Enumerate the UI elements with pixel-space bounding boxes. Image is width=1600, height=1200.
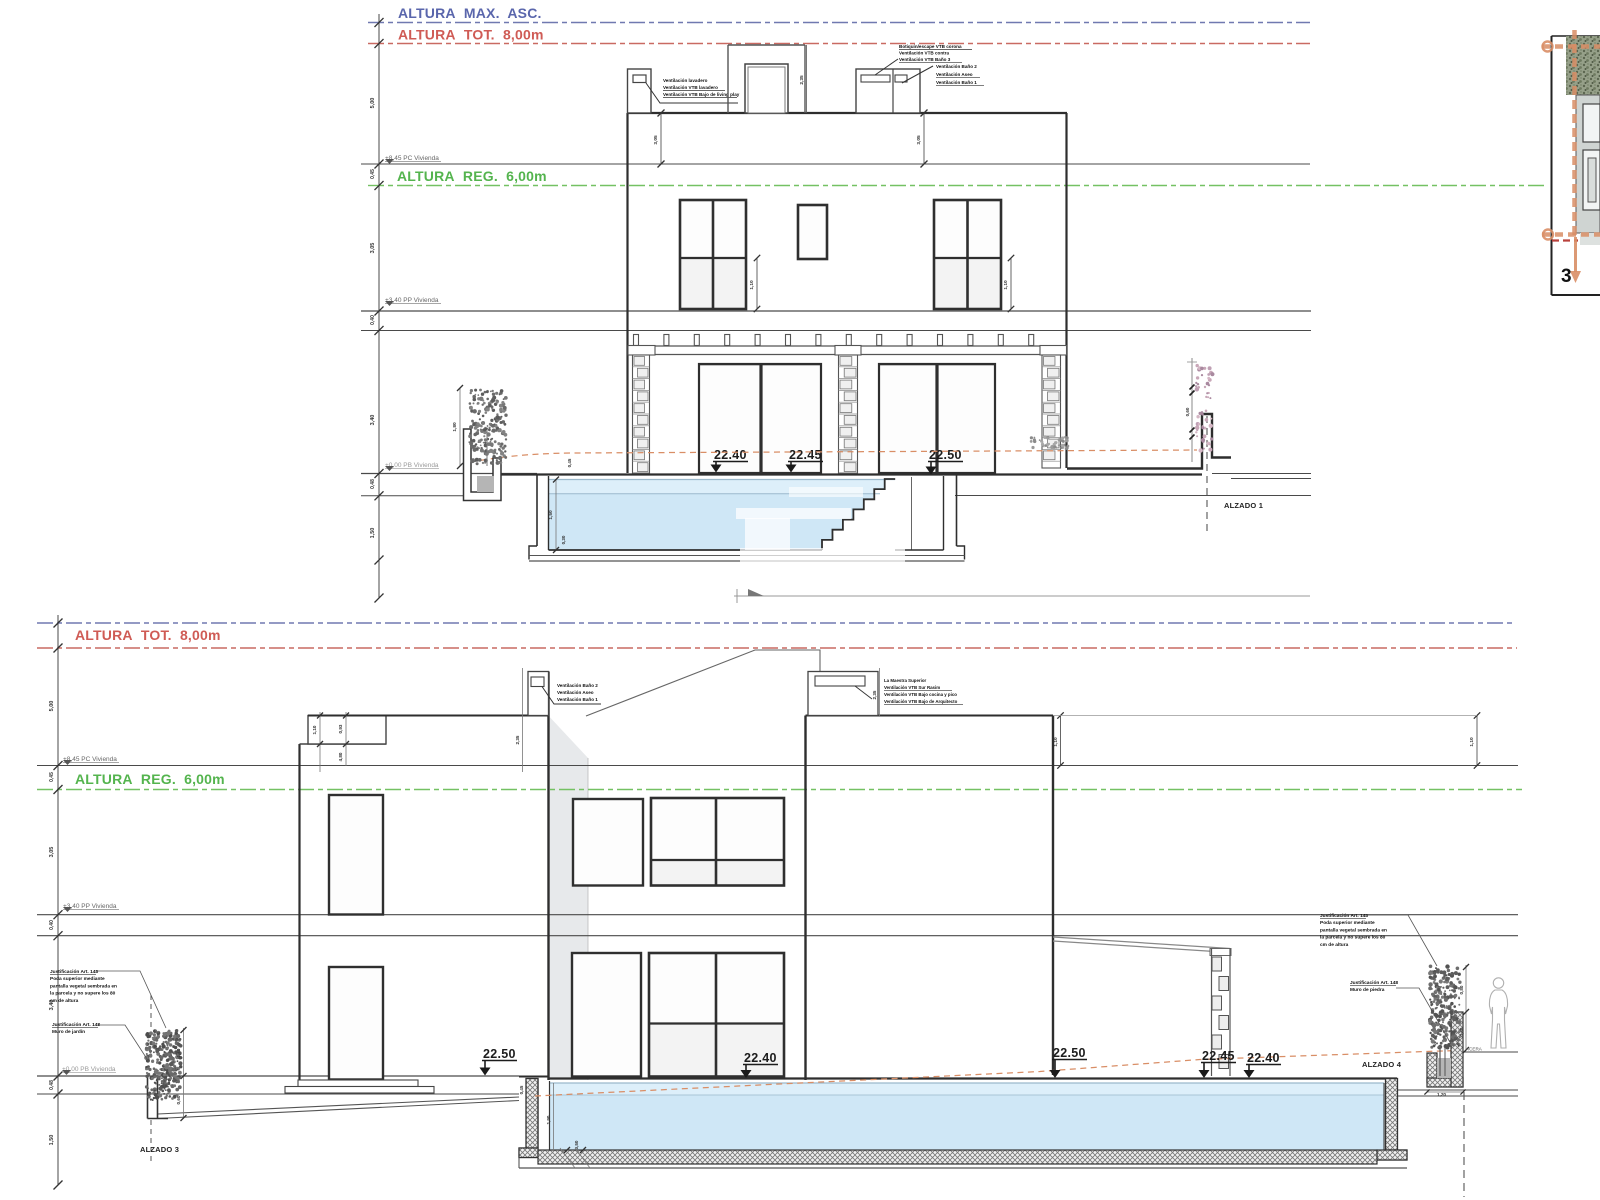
svg-text:1,10: 1,10 xyxy=(312,725,317,734)
svg-text:0,50: 0,50 xyxy=(574,1140,579,1149)
svg-text:1,50: 1,50 xyxy=(370,528,376,539)
svg-text:0,45: 0,45 xyxy=(519,1085,524,1094)
svg-text:0,45: 0,45 xyxy=(370,169,376,179)
svg-text:Ventilación VTB Sur Rasim: Ventilación VTB Sur Rasim xyxy=(884,685,940,690)
svg-text:0,45: 0,45 xyxy=(567,458,572,467)
svg-text:3,05: 3,05 xyxy=(370,243,376,254)
svg-text:1,50: 1,50 xyxy=(548,510,554,520)
svg-text:pantalla vegetal sembrada e: pantalla vegetal sembrada en xyxy=(1320,927,1387,933)
svg-text:0,80: 0,80 xyxy=(1459,985,1464,994)
svg-text:3,40: 3,40 xyxy=(370,415,376,426)
svg-text:pantalla vegetal sembrada e: pantalla vegetal sembrada en xyxy=(50,983,117,989)
svg-text:La Maestra Superior: La Maestra Superior xyxy=(884,678,927,683)
svg-text:1,80: 1,80 xyxy=(176,1048,181,1057)
svg-text:2,35: 2,35 xyxy=(799,75,805,85)
svg-text:22.45: 22.45 xyxy=(1202,1049,1235,1063)
svg-text:Ventilación lavadero: Ventilación lavadero xyxy=(663,78,708,83)
svg-text:1,80: 1,80 xyxy=(452,422,458,432)
svg-text:2,35: 2,35 xyxy=(872,690,877,699)
svg-text:Ventilación Baño 2: Ventilación Baño 2 xyxy=(936,64,977,69)
svg-text:+3,40 PP Vivienda: +3,40 PP Vivienda xyxy=(385,297,439,304)
svg-text:22.50: 22.50 xyxy=(483,1047,516,1061)
svg-text:1,10: 1,10 xyxy=(749,280,755,290)
svg-text:1,90: 1,90 xyxy=(546,1115,551,1124)
svg-text:ACERA: ACERA xyxy=(1466,1047,1483,1052)
svg-text:0,40: 0,40 xyxy=(49,920,55,930)
svg-text:3,05: 3,05 xyxy=(916,135,922,145)
svg-text:22.40: 22.40 xyxy=(1247,1051,1280,1065)
svg-text:1,50: 1,50 xyxy=(49,1135,55,1146)
svg-text:22.50: 22.50 xyxy=(929,448,962,462)
svg-text:ALZADO 3: ALZADO 3 xyxy=(140,1145,179,1154)
svg-text:Ventilación VTB contra: Ventilación VTB contra xyxy=(899,51,949,56)
svg-text:Poda superior mediante: Poda superior mediante xyxy=(1320,920,1375,926)
svg-text:Ventilación Aseo: Ventilación Aseo xyxy=(557,690,594,695)
svg-text:5,00: 5,00 xyxy=(49,701,55,712)
svg-text:+8,45 PC Vivienda: +8,45 PC Vivienda xyxy=(385,155,439,162)
svg-text:Ventilación Baño 1: Ventilación Baño 1 xyxy=(557,697,598,702)
svg-text:0,60: 0,60 xyxy=(176,1095,181,1104)
svg-text:1,10: 1,10 xyxy=(1003,280,1009,290)
svg-text:ALZADO 4: ALZADO 4 xyxy=(1362,1060,1402,1069)
svg-text:0,48: 0,48 xyxy=(49,1080,55,1090)
svg-text:Ventilación Baño 2: Ventilación Baño 2 xyxy=(557,683,598,688)
svg-text:+3,40 PP Vivienda: +3,40 PP Vivienda xyxy=(63,903,117,910)
svg-text:ALTURA REG. 6,00m: ALTURA REG. 6,00m xyxy=(397,168,547,184)
svg-text:2,35: 2,35 xyxy=(515,735,520,744)
svg-text:Poda superior mediante: Poda superior mediante xyxy=(50,976,105,982)
svg-text:0,93: 0,93 xyxy=(338,724,343,733)
svg-text:4,80: 4,80 xyxy=(338,752,343,761)
svg-text:la parcela y no supere lo: la parcela y no supere los 80 xyxy=(1320,935,1386,941)
svg-text:Ventilación VTB Bajo de Arquit: Ventilación VTB Bajo de Arquitecto xyxy=(884,699,958,704)
svg-text:ALTURA MAX. ASC.: ALTURA MAX. ASC. xyxy=(398,5,542,21)
svg-text:0,48: 0,48 xyxy=(370,479,376,489)
svg-text:la parcela y no supere lo: la parcela y no supere los 80 xyxy=(50,991,116,997)
svg-text:22.40: 22.40 xyxy=(744,1051,777,1065)
svg-text:1,10: 1,10 xyxy=(1469,737,1475,747)
svg-text:Ventilación VTB Bajo cocina y: Ventilación VTB Bajo cocina y pico xyxy=(884,692,957,697)
svg-text:+8,45 PC Vivienda: +8,45 PC Vivienda xyxy=(63,756,117,763)
svg-text:22.40: 22.40 xyxy=(714,448,747,462)
svg-text:Ventilación VTB Baño 3: Ventilación VTB Baño 3 xyxy=(899,57,951,62)
svg-text:1,10: 1,10 xyxy=(1053,737,1059,747)
svg-text:cm de altura: cm de altura xyxy=(1320,942,1349,948)
svg-text:3: 3 xyxy=(1561,266,1572,287)
svg-text:ALTURA REG. 6,00m: ALTURA REG. 6,00m xyxy=(75,771,225,787)
svg-text:Muro de jardín: Muro de jardín xyxy=(52,1029,85,1035)
svg-text:cm de altura: cm de altura xyxy=(50,998,79,1004)
svg-text:ALTURA TOT. 8,00m: ALTURA TOT. 8,00m xyxy=(398,27,544,43)
svg-text:Muro de piedra: Muro de piedra xyxy=(1350,987,1385,993)
svg-text:1,20: 1,20 xyxy=(1437,1092,1446,1097)
svg-text:0,60: 0,60 xyxy=(1459,1027,1464,1036)
svg-text:0,60: 0,60 xyxy=(1185,407,1190,416)
svg-text:22.45: 22.45 xyxy=(789,448,822,462)
svg-text:22.50: 22.50 xyxy=(1053,1046,1086,1060)
svg-text:Ventilación Baño 1: Ventilación Baño 1 xyxy=(936,80,977,85)
svg-text:3,05: 3,05 xyxy=(49,847,55,858)
svg-text:+0,00 PB Vivienda: +0,00 PB Vivienda xyxy=(62,1066,116,1073)
svg-text:+0,00 PB Vivienda: +0,00 PB Vivienda xyxy=(385,462,439,469)
svg-text:0,30: 0,30 xyxy=(561,535,566,544)
svg-text:Ventilación Aseo: Ventilación Aseo xyxy=(936,72,973,77)
svg-text:5,00: 5,00 xyxy=(370,98,376,109)
svg-text:ALTURA TOT. 8,00m: ALTURA TOT. 8,00m xyxy=(75,627,221,643)
svg-text:ALZADO 1: ALZADO 1 xyxy=(1224,501,1263,510)
svg-text:0,45: 0,45 xyxy=(49,772,55,782)
svg-text:3,05: 3,05 xyxy=(653,135,659,145)
svg-text:Botiquín/escape VTB corona: Botiquín/escape VTB corona xyxy=(899,44,962,49)
svg-text:0,40: 0,40 xyxy=(370,315,376,325)
svg-text:Ventilación VTB lavadero: Ventilación VTB lavadero xyxy=(663,85,718,90)
